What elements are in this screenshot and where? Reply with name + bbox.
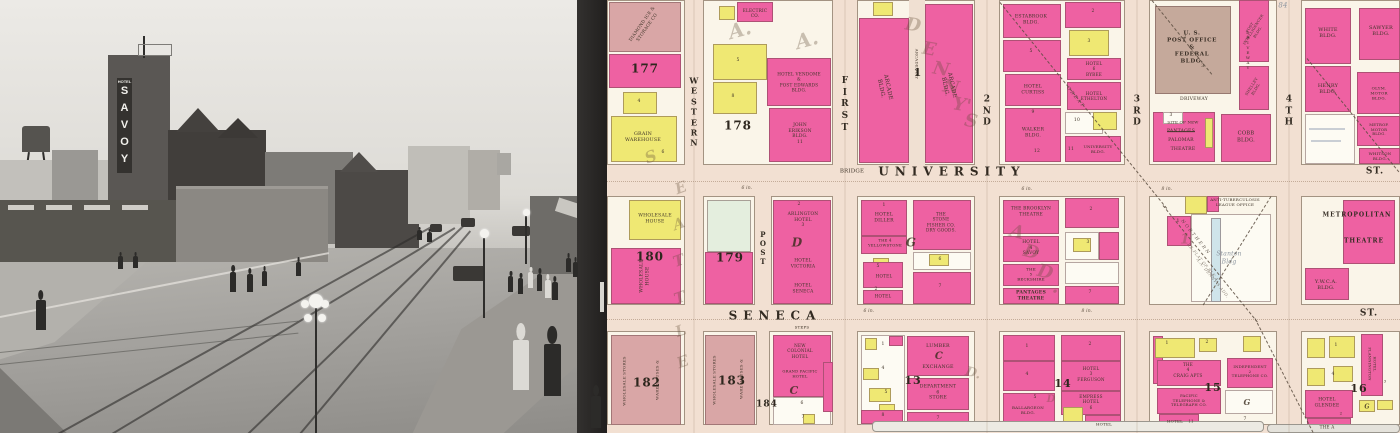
map-label: HOTEL: [875, 293, 892, 298]
map-label: WHOLESALE STORES: [622, 356, 627, 406]
map-labels-layer: W E S T E R NF I R S T2 N D3 R D4 T HP O…: [607, 0, 1400, 433]
map-label: BALLARGEON BLDG.: [1012, 405, 1044, 415]
map-label: 6 in.: [741, 186, 752, 192]
map-label: 7: [936, 416, 939, 422]
map-label: 1: [881, 342, 884, 348]
map-label: 5: [884, 390, 887, 396]
pedestrian: [36, 300, 46, 330]
map-label: 7: [938, 284, 941, 290]
street-3rd: 3 R D: [1133, 94, 1141, 129]
map-label: 3: [1201, 63, 1204, 69]
map-label: SAWYER BLDG.: [1369, 25, 1393, 38]
street-seneca: SENECA: [729, 309, 822, 324]
map-label: 5: [876, 264, 879, 270]
map-label: 10: [1074, 118, 1080, 124]
map-label: METROPOLITAN: [1323, 211, 1392, 219]
street-lamp: [483, 238, 485, 318]
map-label: 7: [1088, 290, 1091, 296]
map-label: 11: [1068, 147, 1074, 153]
map-label: PANTAGES: [1167, 129, 1195, 135]
street-western: W E S T E R N: [689, 76, 698, 149]
street-post: P O S T: [760, 230, 766, 266]
map-label: 6: [938, 257, 941, 263]
pedestrian: [417, 230, 422, 240]
map-label: 2: [1088, 342, 1091, 348]
map-label: 1: [914, 66, 923, 80]
map-label: 16: [1350, 382, 1367, 396]
map-label: GRAND PACIFIC HOTEL: [782, 369, 817, 378]
lamp-globe: [304, 314, 312, 322]
horse-wagon: [430, 224, 442, 232]
street-2nd: 2 N D: [983, 94, 991, 129]
map-label: 5: [736, 58, 739, 64]
map-label: 14: [1054, 377, 1071, 391]
lamp-globe: [301, 300, 309, 308]
map-label: COBB BLDG.: [1237, 131, 1255, 144]
pedestrian: [133, 256, 138, 268]
map-label: G: [1243, 397, 1250, 407]
map-label: 6 in.: [1021, 187, 1032, 193]
map-label: C: [935, 351, 943, 364]
map-label: WARE HOUSES &: [655, 360, 660, 400]
map-label: 4: [1025, 372, 1028, 378]
map-label: WHITSON BLDG.: [1369, 151, 1392, 161]
map-label: .: [1050, 276, 1062, 299]
pedestrian: [427, 232, 432, 242]
map-label: 7: [801, 415, 804, 421]
photo-detail-layer: [0, 0, 607, 433]
map-label: THE 4 CRAIG APTS: [1173, 362, 1202, 378]
map-label: ARLINGTON HOTEL 3: [788, 212, 819, 229]
map-label: G: [906, 236, 916, 251]
map-label: 2: [1183, 35, 1186, 41]
street-seneca-st: ST.: [1360, 308, 1378, 319]
map-label: 7: [1243, 417, 1246, 423]
pedestrian: [513, 340, 529, 390]
map-label: A: [670, 213, 688, 235]
pedestrian: [518, 278, 523, 294]
map-label: 178: [724, 119, 752, 134]
map-label: HOTEL VENDOME & POST EDWARDS BLDG.: [777, 72, 821, 93]
map-label: 9: [1031, 110, 1034, 116]
map-label: 179: [716, 251, 744, 266]
map-label: WARE HOUSES &: [739, 359, 744, 399]
street-lamp: [315, 308, 317, 433]
map-label: D.: [963, 364, 982, 384]
map-label: 8 in.: [1161, 187, 1172, 193]
street-first: F I R S T: [841, 76, 849, 134]
map-label: 8 in.: [1081, 309, 1092, 315]
map-label: 177: [631, 62, 659, 77]
map-label: HOTEL GLENDEE: [1315, 398, 1340, 409]
map-label: 4: [637, 99, 640, 105]
map-label: INDEPENDENT 2 TELEPHONE CO.: [1232, 365, 1268, 379]
map-label: THE A: [1320, 424, 1335, 429]
map-label: JOHN ERIKSON BLDG. 11: [788, 123, 811, 145]
map-label: PACIFIC TELEPHONE & TELEGRAPH CO.: [1171, 394, 1207, 408]
map-label: DRIVEWAY: [1180, 97, 1208, 103]
map-label: 2: [797, 202, 800, 208]
pedestrian: [545, 280, 551, 298]
map-label: 2: [874, 287, 877, 293]
map-label: THEATRE: [1344, 237, 1384, 245]
streetcar-track: [247, 225, 464, 433]
map-label: HOTEL CURTISS: [1021, 84, 1044, 95]
map-label: U. S. POST OFFICE & FEDERAL BLDG.: [1167, 31, 1217, 66]
map-label: 1: [1165, 341, 1168, 347]
map-label: THE 4 YELLOWSTONE: [868, 238, 902, 247]
street-university-st: ST.: [1366, 166, 1384, 177]
street-photo: HOTEL SAVOY: [0, 0, 607, 433]
map-label: 3: [1087, 39, 1090, 45]
lamp-globe: [321, 300, 329, 308]
map-label: 184: [756, 399, 778, 410]
lamp-globe: [523, 209, 530, 216]
streetcar-track: [58, 225, 435, 433]
map-label: DIAMOND ICE & STORAGE CO: [629, 6, 662, 46]
map-label: ARCADE BLDG.: [875, 74, 894, 102]
pedestrian: [262, 271, 267, 286]
street-university: UNIVERSITY: [878, 165, 1025, 180]
map-label: T: [670, 250, 687, 272]
map-label: 4: [881, 366, 884, 372]
map-label: WHOLESALE HOUSE: [639, 259, 650, 293]
map-label: HOTEL VICTORIA: [791, 259, 816, 270]
map-label: 15: [1204, 381, 1221, 395]
street-bridge: BRIDGE: [840, 169, 864, 176]
map-label: WHITE BLDG.: [1318, 27, 1337, 40]
map-label: 6 in.: [863, 309, 874, 315]
map-label: E: [672, 177, 689, 199]
sanborn-map: W E S T E R NF I R S T2 N D3 R D4 T HP O…: [607, 0, 1400, 433]
map-label: WHOLESALE STORES: [712, 355, 717, 405]
map-label: S: [963, 110, 980, 134]
map-label: DEPARTMENT 6 STORE: [920, 384, 957, 401]
map-label: 2: [1340, 411, 1343, 416]
map-label: A.: [793, 25, 822, 55]
street-4th: 4 T H: [1285, 94, 1294, 129]
map-label: HENRY BLDG.: [1318, 83, 1338, 96]
map-label: 11: [1188, 419, 1194, 424]
map-label: HOTEL ETHELTON: [1081, 91, 1108, 102]
map-label: 5: [1029, 49, 1032, 55]
map-label: E: [674, 351, 691, 373]
map-label: NEW COLONIAL HOTEL: [787, 343, 813, 359]
pedestrian: [230, 272, 236, 292]
map-label: ANTI-TUBERCULOSIS LEAGUE OFFICE: [1210, 197, 1260, 207]
curb-line: [0, 252, 329, 318]
map-label: HOTEL: [876, 273, 893, 278]
map-label: 6: [661, 150, 664, 156]
map-label: 4: [1331, 372, 1334, 378]
pedestrian: [573, 262, 578, 277]
map-label: HOTEL DILLER: [874, 212, 894, 223]
map-label: 2: [1091, 9, 1094, 15]
map-label: 8: [731, 94, 734, 100]
map-label: UNIVERSITY BLDG.: [1084, 144, 1113, 154]
pedestrian: [591, 396, 601, 428]
map-label: G: [1364, 403, 1369, 411]
horse-wagon: [461, 218, 475, 227]
pedestrian: [544, 344, 561, 396]
map-label: 2: [1205, 340, 1208, 346]
lamp-globe: [318, 314, 326, 322]
map-label: POST INTELLIGENCER BLDG.: [1239, 12, 1269, 49]
map-label: HOTEL SENECA: [793, 284, 814, 295]
map-label: D: [1047, 394, 1056, 407]
map-label: SITE OF NEW: [1167, 120, 1198, 125]
map-label: Y.W.C.A. BLDG.: [1315, 279, 1337, 292]
map-label: STEPS: [795, 325, 810, 330]
map-label: C: [790, 384, 799, 398]
pedestrian: [566, 258, 571, 272]
map-label: WHOLESALE HOUSE: [638, 213, 672, 224]
map-label: 5: [1033, 395, 1036, 401]
map-label: EXCHANGE: [922, 365, 953, 371]
map-label: HOTEL 3 FERGUSON: [1077, 366, 1105, 382]
map-label: 84: [1278, 2, 1287, 11]
map-label: OLYM. MOTOR BLDG.: [1370, 86, 1387, 101]
pedestrian: [508, 276, 513, 292]
map-label: PALOMAR: [1168, 138, 1194, 144]
map-label: S: [642, 146, 660, 169]
pedestrian: [296, 262, 301, 276]
map-label: LUMBER: [926, 344, 950, 350]
pedestrian: [537, 274, 542, 291]
horse-wagon: [512, 226, 530, 236]
lamp-globe: [480, 229, 489, 238]
map-label: 1: [1334, 343, 1337, 349]
map-label: ESTABROOK BLDG.: [1015, 14, 1047, 25]
map-label: A.: [726, 15, 755, 45]
map-label: 6: [800, 401, 803, 407]
map-label: 12: [1034, 149, 1040, 155]
map-label: L: [673, 320, 690, 341]
map-label: 1: [882, 203, 885, 209]
map-label: PANTAGES THEATRE: [1016, 290, 1046, 301]
map-label: EMPRESS HOTEL 6: [1079, 394, 1102, 410]
map-label: 3: [1086, 240, 1089, 246]
pedestrian: [528, 272, 533, 288]
map-label: T: [671, 287, 688, 309]
map-label: HOTEL PLANNINGTON: [1367, 347, 1376, 381]
map-label: METROP. MOTOR BLDG.: [1369, 123, 1389, 137]
map-label: THEATRE: [1171, 147, 1196, 153]
map-label: D: [792, 236, 803, 251]
map-label: D: [1034, 260, 1055, 286]
map-label: HOTEL 6 BYBEE: [1086, 61, 1103, 77]
street-lamp: [525, 216, 527, 264]
streetcar-track: [111, 227, 455, 433]
map-label: Stanton Bldg: [1216, 251, 1241, 266]
pedestrian: [552, 282, 558, 300]
map-label: THE BROOKLYN THEATRE: [1011, 207, 1051, 218]
map-label: THE STONE FISHER CO. DRY GOODS.: [926, 212, 956, 233]
pedestrian: [118, 256, 123, 269]
map-label: 8: [881, 413, 884, 419]
map-label: GRAIN WAREHOUSE: [625, 132, 661, 144]
map-label: 3: [1384, 379, 1387, 384]
map-label: D: [903, 14, 922, 39]
horse-wagon: [453, 266, 485, 281]
map-label: 3: [1169, 113, 1172, 119]
streetcar-track: [299, 230, 471, 433]
map-label: HOTEL: [1167, 419, 1183, 424]
map-label: WALKER BLDG.: [1022, 127, 1044, 138]
pedestrian: [247, 274, 253, 292]
map-label: HOTEL: [1096, 422, 1112, 427]
screenshot-root: HOTEL SAVOY W E S T E R N: [0, 0, 1400, 433]
map-label: 1: [1025, 344, 1028, 350]
map-label: SHELLEY BLDG.: [1245, 77, 1264, 99]
map-label: 2: [1089, 207, 1092, 213]
